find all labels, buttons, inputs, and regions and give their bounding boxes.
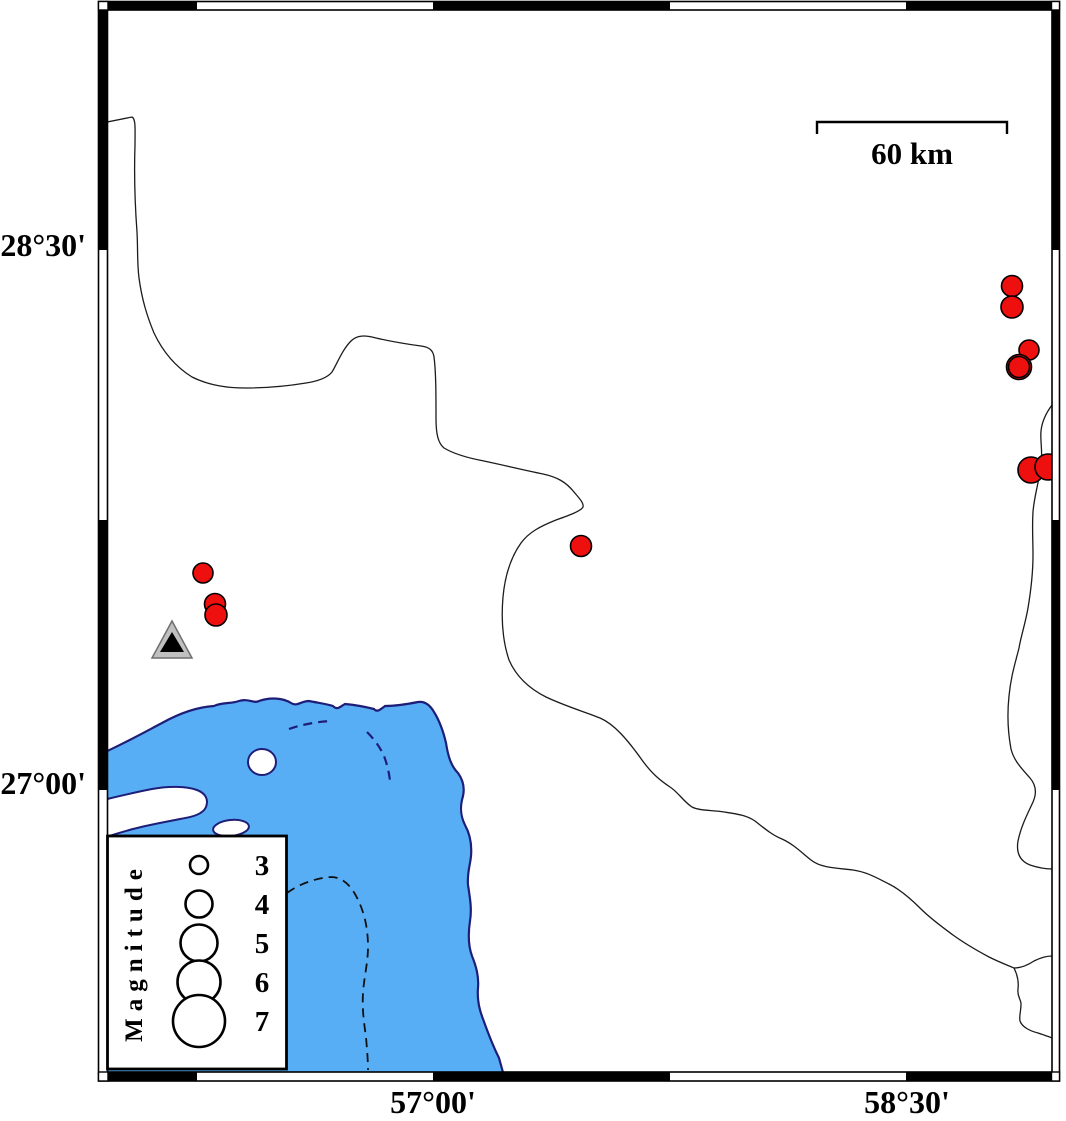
frame-segment	[99, 520, 108, 790]
frame-corner	[99, 2, 109, 11]
magnitude-legend: Magnitude 34567	[108, 836, 287, 1069]
frame-segment	[108, 1072, 197, 1081]
legend-title: Magnitude	[121, 862, 148, 1042]
legend-magnitude-value: 6	[255, 967, 270, 999]
frame-segment	[108, 2, 197, 11]
frame-segment	[99, 10, 108, 250]
legend-magnitude-value: 5	[255, 928, 270, 960]
frame-segment	[1052, 10, 1060, 250]
legend-magnitude-circle	[173, 995, 225, 1047]
legend-magnitude-value: 4	[255, 889, 270, 921]
earthquake-marker	[205, 604, 227, 626]
earthquake-marker	[1002, 276, 1023, 297]
legend-magnitude-value: 3	[255, 850, 270, 882]
earthquake-marker	[1001, 296, 1023, 318]
scale-bar-bracket	[817, 122, 1007, 134]
frame-segment	[906, 2, 1052, 11]
frame-segment	[1052, 520, 1060, 790]
frame-corner	[1052, 1072, 1060, 1081]
scale-bar-label: 60 km	[871, 136, 953, 171]
map-svg: 28°30' 27°00' 57°00' 58°30' 60 km Magnit…	[0, 0, 1066, 1121]
earthquake-marker	[1035, 454, 1061, 480]
boundary-line-spur	[1014, 968, 1052, 1038]
earthquake-marker	[1009, 357, 1030, 378]
legend-magnitude-circle	[190, 856, 208, 874]
frame-segment	[433, 2, 670, 11]
lat-label-2830: 28°30'	[0, 227, 86, 263]
legend-magnitude-circle	[181, 925, 218, 962]
seismicity-map: 28°30' 27°00' 57°00' 58°30' 60 km Magnit…	[0, 0, 1066, 1121]
scale-bar: 60 km	[817, 122, 1007, 171]
frame-segment	[433, 1072, 670, 1081]
frame-corner	[99, 1072, 109, 1081]
island	[248, 749, 276, 775]
legend-magnitude-circle	[186, 891, 213, 918]
lon-label-5700: 57°00'	[390, 1084, 476, 1120]
legend-magnitude-value: 7	[255, 1006, 270, 1038]
frame-segment	[906, 1072, 1052, 1081]
lon-label-5830: 58°30'	[864, 1084, 950, 1120]
earthquake-markers	[193, 276, 1061, 627]
earthquake-marker	[571, 536, 592, 557]
lat-label-2700: 27°00'	[0, 765, 86, 801]
station-triangle-marker	[152, 621, 192, 658]
earthquake-marker	[193, 563, 213, 583]
frame-corner	[1052, 2, 1060, 11]
boundary-line-spur	[1014, 956, 1052, 968]
